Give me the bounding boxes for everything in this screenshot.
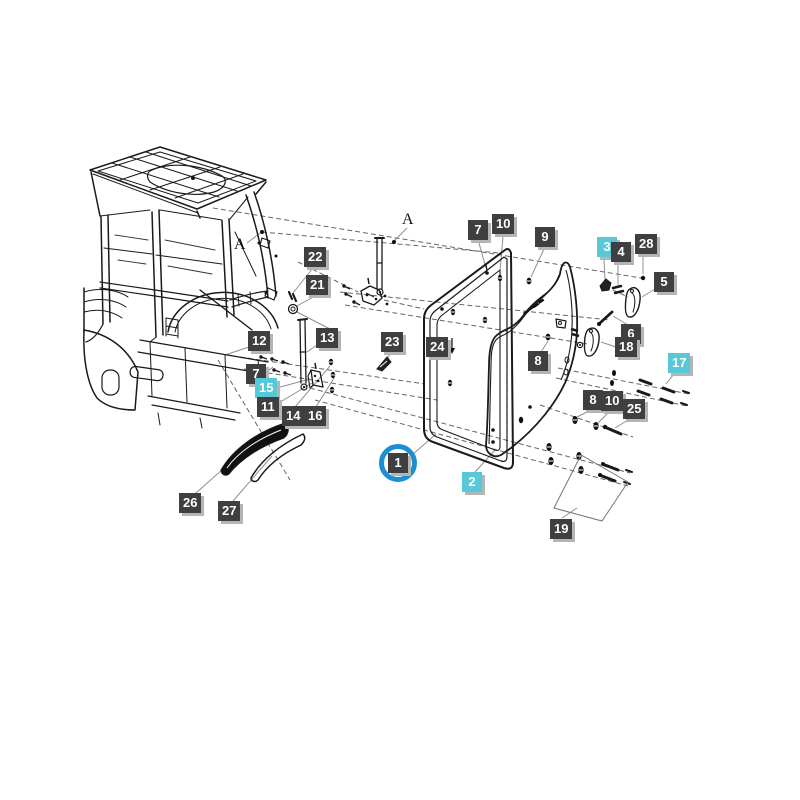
view-ref-a-cab: A xyxy=(234,236,246,254)
part-label-16[interactable]: 16 xyxy=(304,406,326,426)
part-label-26[interactable]: 26 xyxy=(179,493,201,513)
part-label-5[interactable]: 5 xyxy=(654,272,674,292)
hinge-upper xyxy=(361,278,382,305)
part-label-21[interactable]: 21 xyxy=(306,275,328,295)
fastener-rows xyxy=(546,370,689,484)
part-label-1-selected[interactable]: 1 xyxy=(388,453,408,473)
part-label-19[interactable]: 19 xyxy=(550,519,572,539)
gas-strut-upper xyxy=(375,238,384,295)
part-label-18[interactable]: 18 xyxy=(615,337,637,357)
part-label-27[interactable]: 27 xyxy=(218,501,240,521)
part-label-28[interactable]: 28 xyxy=(635,234,657,254)
door-glass-seal xyxy=(437,270,500,451)
exploded-parts-drawing xyxy=(0,0,800,800)
cab-frame-drawing xyxy=(84,147,278,428)
part-label-9[interactable]: 9 xyxy=(535,227,555,247)
part-label-4[interactable]: 4 xyxy=(611,242,631,262)
clip-part xyxy=(600,279,611,291)
parts-diagram-stage: 22 21 12 13 23 24 7 15 11 14 16 26 27 1 … xyxy=(0,0,800,800)
screw-part xyxy=(600,312,612,323)
door-window-frame xyxy=(424,249,523,469)
part-label-15[interactable]: 15 xyxy=(255,378,277,398)
bushing xyxy=(289,305,298,314)
part-label-25[interactable]: 25 xyxy=(623,399,645,419)
part-label-23[interactable]: 23 xyxy=(381,332,403,352)
part-label-10-lower[interactable]: 10 xyxy=(601,391,623,411)
part-label-2[interactable]: 2 xyxy=(462,472,482,492)
part-label-17[interactable]: 17 xyxy=(668,353,690,373)
glass-pane-outline xyxy=(554,455,628,521)
wedge-guide xyxy=(377,357,391,371)
part-label-10-frame[interactable]: 10 xyxy=(492,214,514,234)
washer-bars xyxy=(613,286,623,293)
part-label-24[interactable]: 24 xyxy=(426,337,448,357)
part-label-11[interactable]: 11 xyxy=(257,397,279,417)
part-label-22[interactable]: 22 xyxy=(304,247,326,267)
part-label-8-lower[interactable]: 8 xyxy=(583,390,603,410)
part-label-7-frame[interactable]: 7 xyxy=(468,220,488,240)
part-label-14[interactable]: 14 xyxy=(282,406,304,426)
pin-dot xyxy=(641,276,645,280)
part-label-13[interactable]: 13 xyxy=(316,328,338,348)
view-ref-a-strut: A xyxy=(402,211,414,229)
gas-strut-lower xyxy=(298,319,307,390)
hinge-pins xyxy=(289,292,296,301)
part-label-8-panel[interactable]: 8 xyxy=(528,351,548,371)
part-label-12[interactable]: 12 xyxy=(248,331,270,351)
